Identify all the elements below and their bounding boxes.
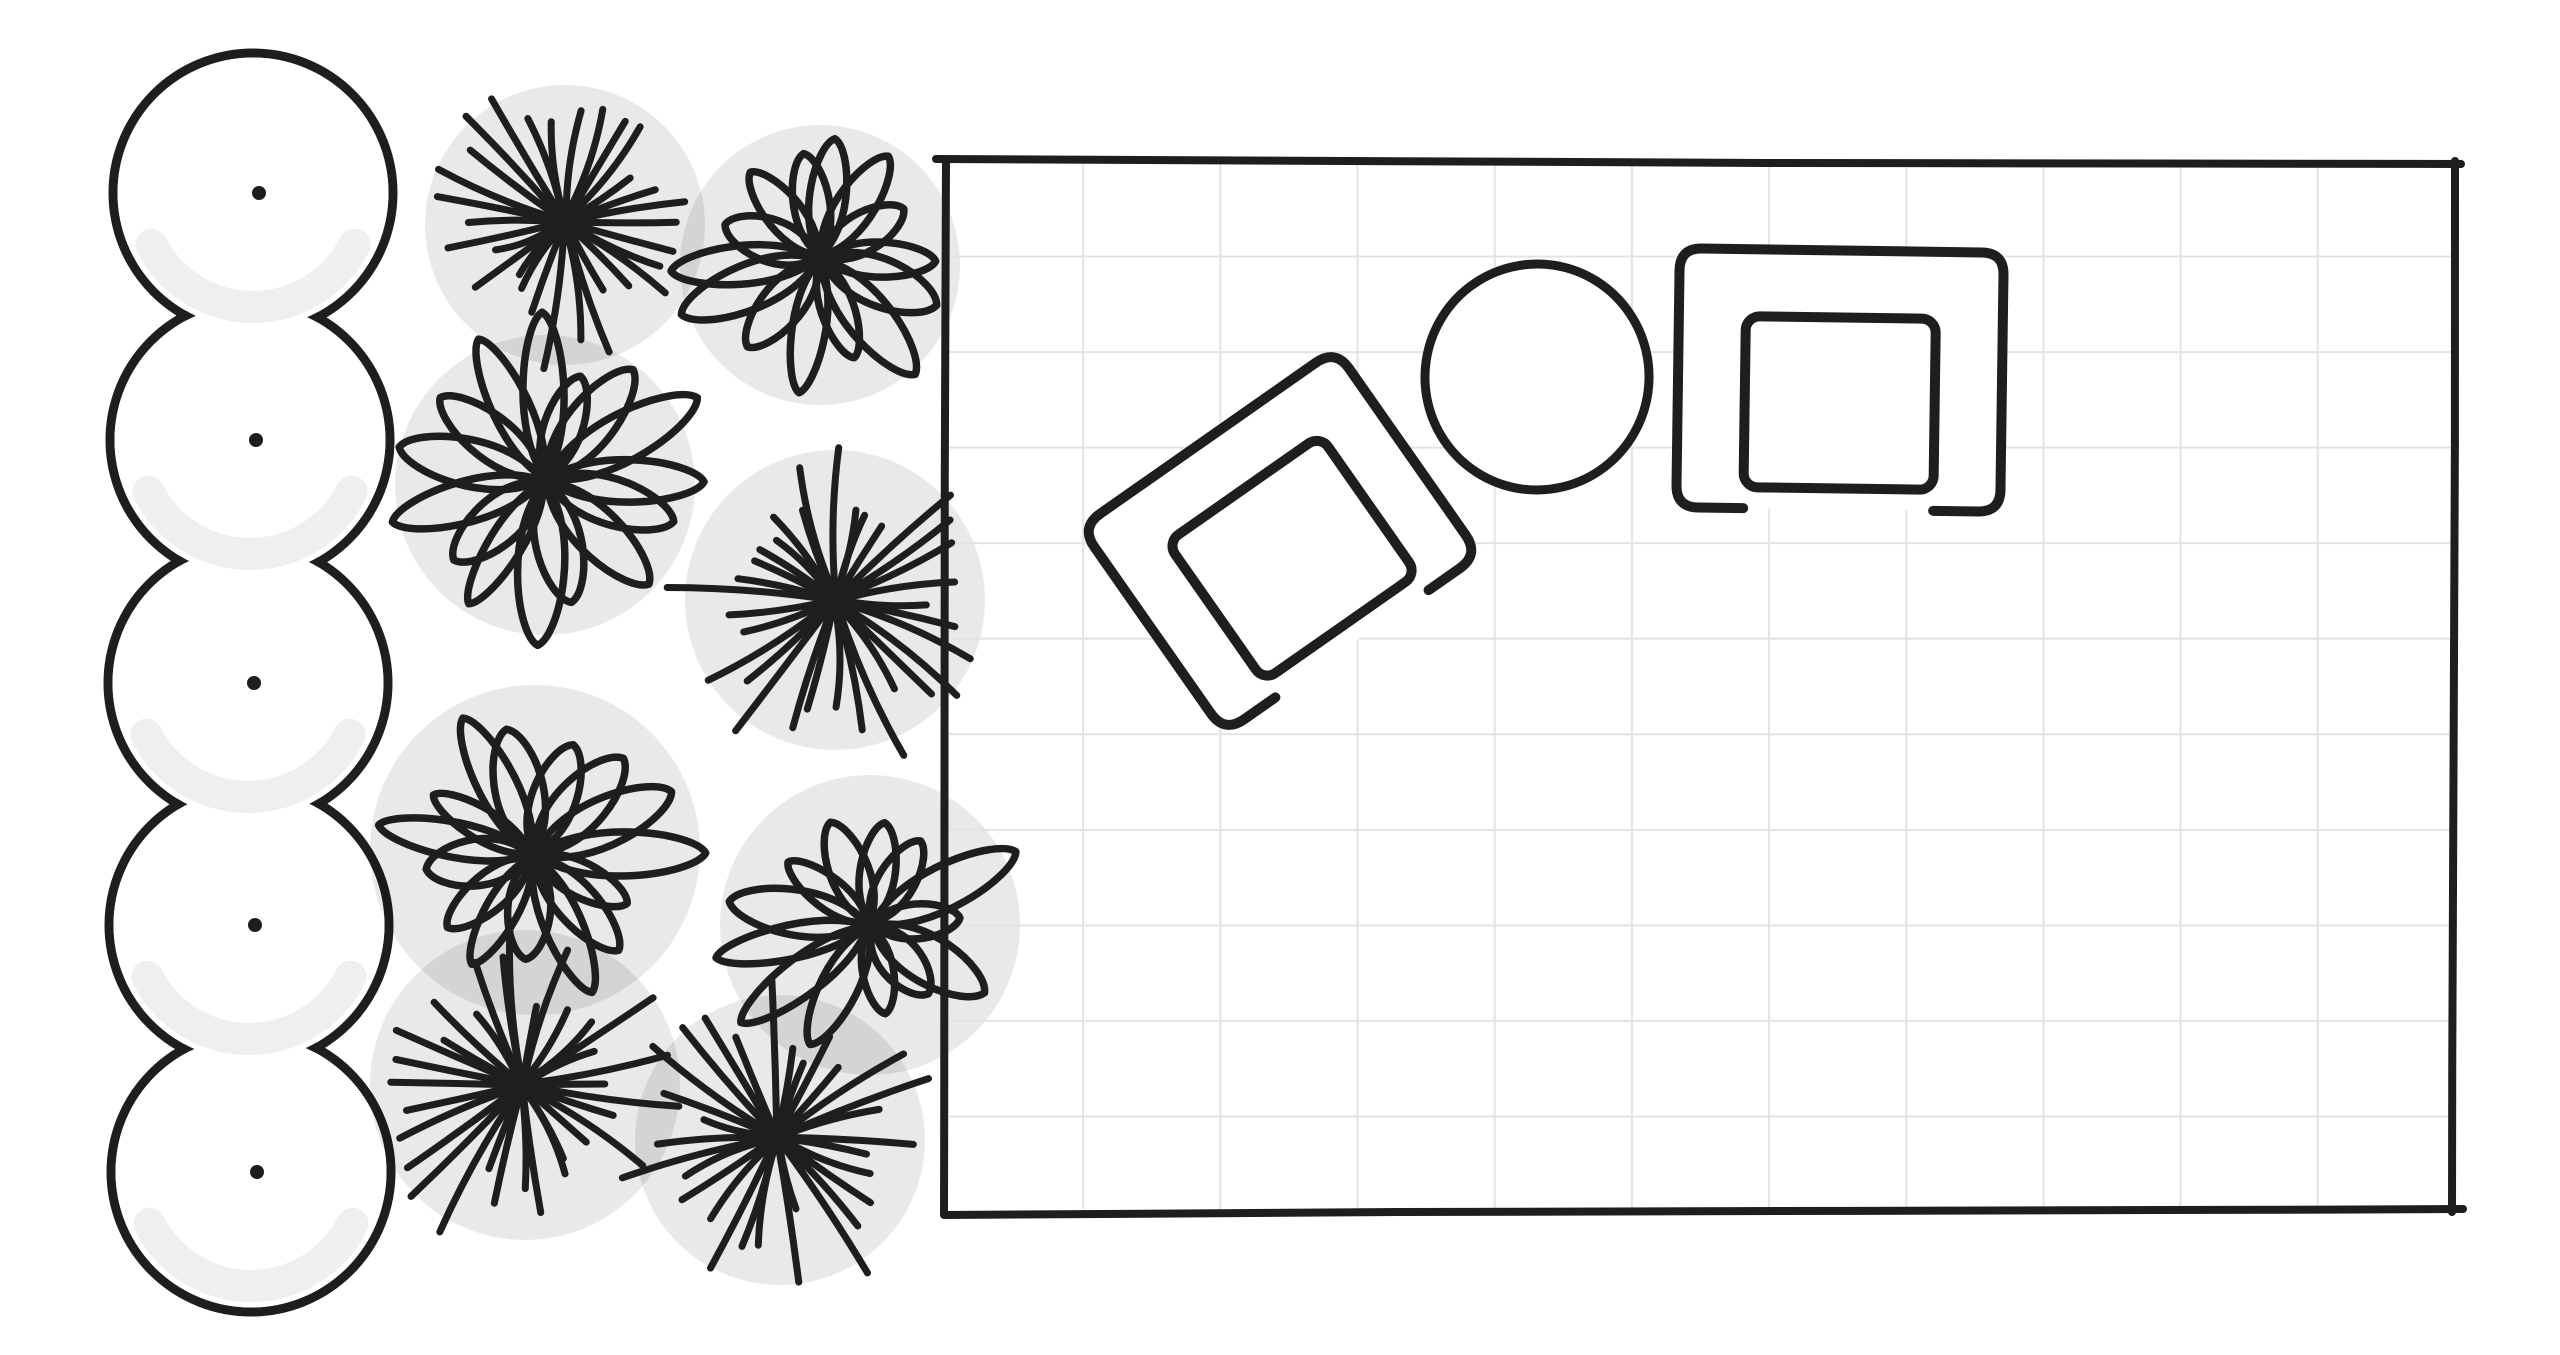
- tree-center-dot: [248, 918, 262, 932]
- room-wall-top: [936, 159, 2461, 164]
- plant-ray-stroke: [522, 1094, 526, 1189]
- tree-row-layer: [108, 53, 393, 1312]
- plant-ray-stroke: [574, 222, 677, 223]
- plant-center: [550, 207, 580, 237]
- furniture-layer: [1081, 248, 2004, 733]
- plant-center: [808, 246, 832, 270]
- room-wall-right: [2452, 161, 2455, 1212]
- sofa-seat-outline: [1743, 316, 1935, 490]
- tree-center-dot: [247, 676, 261, 690]
- room-wall-bottom: [944, 1209, 2463, 1215]
- round-table[interactable]: [1410, 250, 1663, 505]
- tree-center-dot: [252, 186, 266, 200]
- sofa-angled[interactable]: [1081, 349, 1480, 733]
- landscape-plan-drawing: [0, 0, 2560, 1355]
- sofa-straight[interactable]: [1676, 248, 2004, 511]
- tree-center-dot: [250, 1165, 264, 1179]
- plant-center: [820, 585, 850, 615]
- drawing-canvas[interactable]: [0, 0, 2560, 1355]
- plant-center: [507, 1070, 537, 1100]
- plant-center: [858, 913, 882, 937]
- plant-center: [521, 843, 545, 867]
- plant-center: [762, 1122, 792, 1152]
- tree-center-dot: [249, 433, 263, 447]
- plant-center: [533, 468, 557, 492]
